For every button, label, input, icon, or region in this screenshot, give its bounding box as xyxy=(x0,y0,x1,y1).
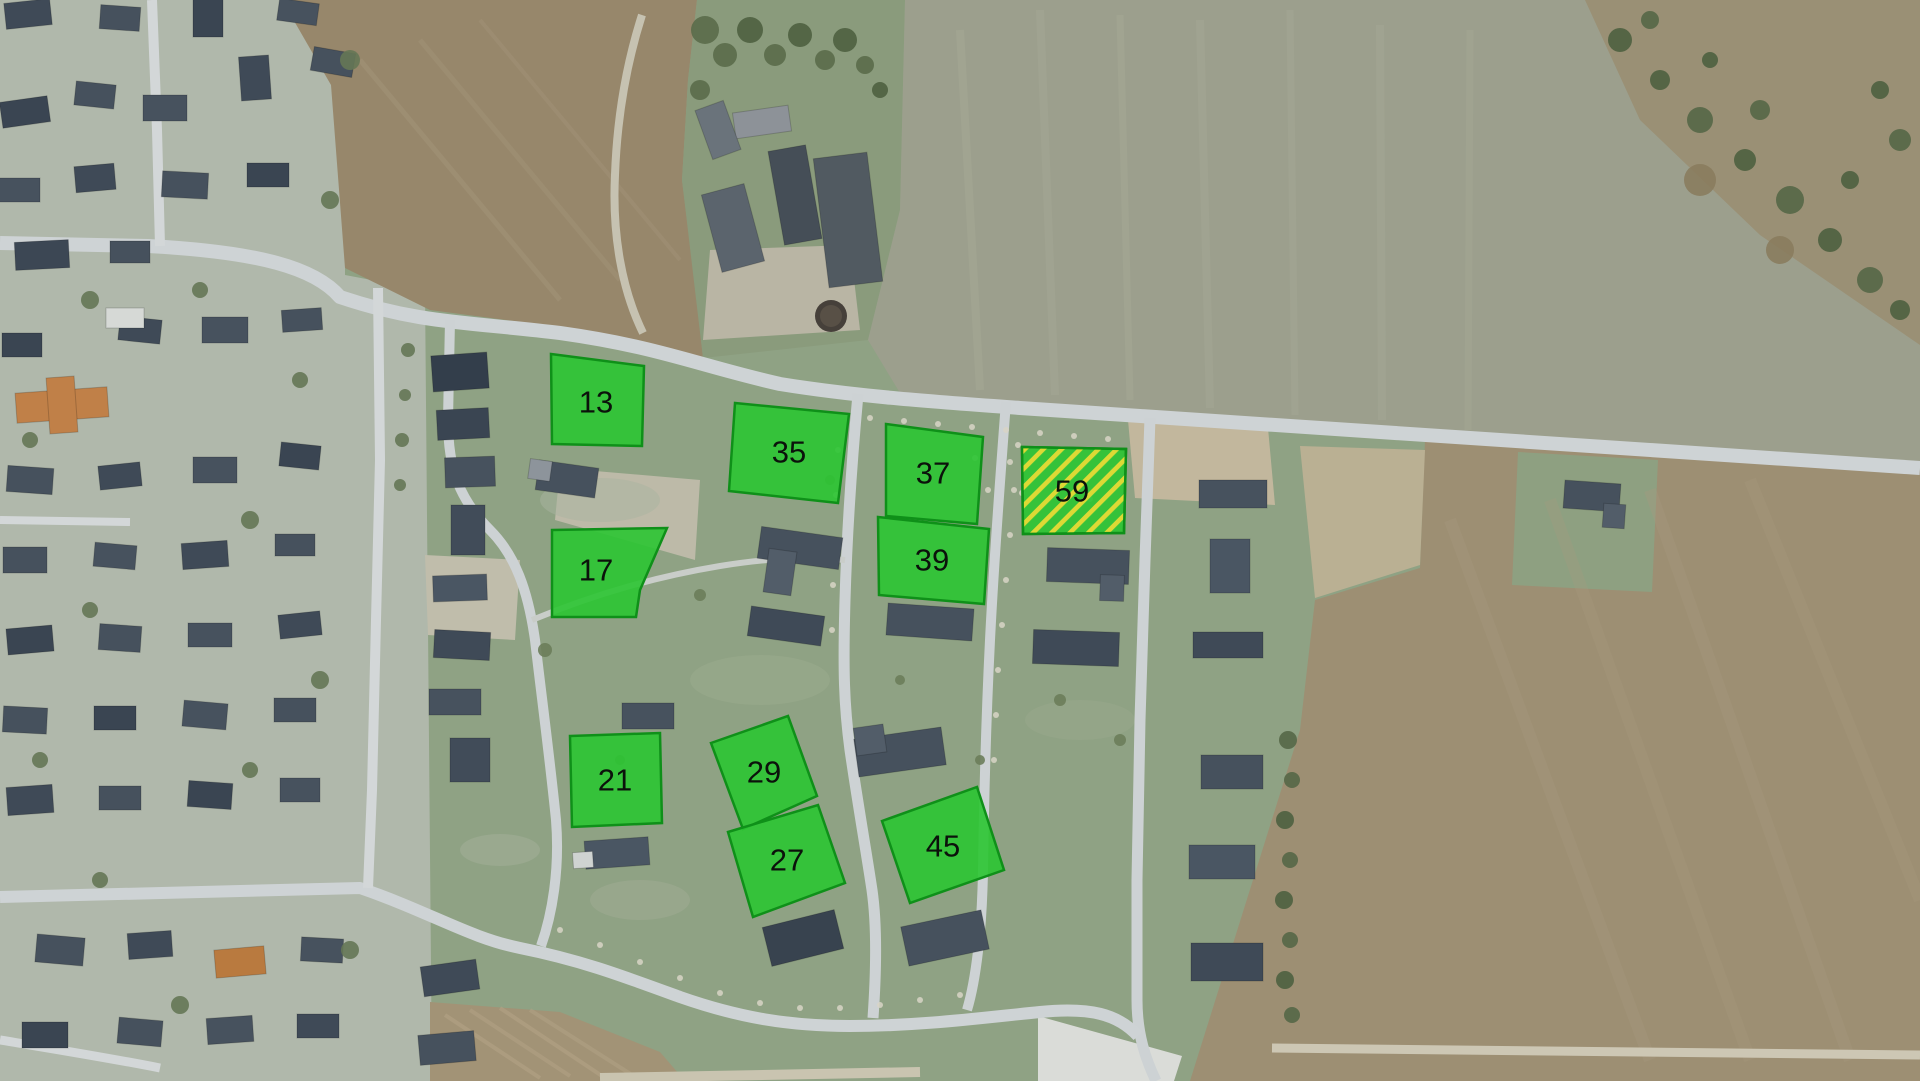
aerial-map: 13353739591721292745 xyxy=(0,0,1920,1081)
farm-tank xyxy=(820,305,842,327)
house-roof xyxy=(117,1017,163,1047)
house-roof xyxy=(433,630,490,661)
house-roof xyxy=(429,689,481,715)
tree xyxy=(538,643,552,657)
house-roof xyxy=(1199,480,1267,508)
house-roof xyxy=(239,55,272,101)
house-roof xyxy=(1191,943,1263,981)
parcel-shape[interactable] xyxy=(551,354,644,446)
house-roof xyxy=(278,611,322,639)
tree xyxy=(872,82,888,98)
house-roof xyxy=(1602,503,1626,528)
tree xyxy=(690,80,710,100)
house-roof xyxy=(451,505,485,555)
tree xyxy=(713,43,737,67)
field-furrow xyxy=(1380,25,1382,420)
house-roof xyxy=(93,542,137,570)
house-roof xyxy=(161,171,208,199)
house-roof xyxy=(436,408,489,441)
tree xyxy=(321,191,339,209)
parcel-59[interactable]: 59 xyxy=(1022,447,1126,534)
sapling-dot xyxy=(1011,487,1017,493)
parcel-37[interactable]: 37 xyxy=(886,424,983,524)
parcel-21[interactable]: 21 xyxy=(570,733,662,827)
tree xyxy=(833,28,857,52)
tree xyxy=(171,996,189,1014)
tree xyxy=(1114,734,1126,746)
house-roof xyxy=(187,780,233,809)
parcel-hatch-overlay xyxy=(1022,447,1126,534)
house-roof xyxy=(297,1014,339,1038)
tree xyxy=(895,675,905,685)
tree xyxy=(1608,28,1632,52)
tree xyxy=(241,511,259,529)
house-roof xyxy=(110,241,150,263)
tree xyxy=(395,433,409,447)
sapling-dot xyxy=(877,1002,883,1008)
aerial-map-canvas: 13353739591721292745 xyxy=(0,0,1920,1081)
house-roof xyxy=(74,163,116,192)
sapling-dot xyxy=(829,627,835,633)
house-roof xyxy=(275,534,315,556)
house-roof xyxy=(444,456,495,488)
house-roof xyxy=(853,724,887,756)
house-roof xyxy=(193,457,237,483)
house-roof xyxy=(98,462,142,490)
house-roof xyxy=(181,540,229,569)
house-roof xyxy=(202,317,248,343)
house-roof xyxy=(280,778,320,802)
house-roof xyxy=(99,5,141,32)
tree xyxy=(737,17,763,43)
house-roof xyxy=(1193,632,1263,658)
tree xyxy=(815,50,835,70)
parcel-39[interactable]: 39 xyxy=(878,517,989,604)
house-roof xyxy=(4,0,52,29)
house-roof xyxy=(763,548,797,595)
house-roof xyxy=(14,240,69,271)
field-east-house-lot xyxy=(1512,452,1658,592)
tree xyxy=(401,343,415,357)
tree xyxy=(82,602,98,618)
road-track-bottom-edge xyxy=(600,1072,920,1078)
house-roof xyxy=(274,698,316,722)
tree xyxy=(764,44,786,66)
tree xyxy=(975,755,985,765)
house-roof xyxy=(450,738,490,782)
sapling-dot xyxy=(830,582,836,588)
house-roof xyxy=(2,333,42,357)
sapling-dot xyxy=(901,418,907,424)
sapling-dot xyxy=(1071,433,1077,439)
house-roof xyxy=(281,308,322,333)
tree xyxy=(691,16,719,44)
house-roof xyxy=(0,178,40,202)
house-roof xyxy=(572,851,593,868)
tree xyxy=(788,23,812,47)
house-roof xyxy=(94,706,136,730)
sapling-dot xyxy=(867,415,873,421)
house-roof xyxy=(35,934,85,966)
tree xyxy=(1776,186,1804,214)
worn-grass xyxy=(460,834,540,866)
tree xyxy=(22,432,38,448)
house-roof xyxy=(206,1015,254,1044)
tree xyxy=(1279,731,1297,749)
tree xyxy=(311,671,329,689)
worn-grass xyxy=(1025,700,1135,740)
sapling-dot xyxy=(935,421,941,427)
tree xyxy=(394,479,406,491)
house-roof xyxy=(1210,539,1250,593)
house-roof xyxy=(1201,755,1263,789)
tree xyxy=(340,50,360,70)
sapling-dot xyxy=(993,712,999,718)
sapling-dot xyxy=(677,975,683,981)
tree xyxy=(694,589,706,601)
tree xyxy=(242,762,258,778)
tree xyxy=(1282,852,1298,868)
tree xyxy=(1284,1007,1300,1023)
sapling-dot xyxy=(837,1005,843,1011)
tree xyxy=(1641,11,1659,29)
sapling-dot xyxy=(597,942,603,948)
tree xyxy=(1889,129,1911,151)
sapling-dot xyxy=(1037,430,1043,436)
house-roof xyxy=(143,95,187,121)
sapling-dot xyxy=(557,927,563,933)
tree xyxy=(1750,100,1770,120)
tree xyxy=(399,389,411,401)
tree xyxy=(1857,267,1883,293)
sapling-dot xyxy=(797,1005,803,1011)
house-roof xyxy=(431,352,489,392)
worn-grass xyxy=(690,655,830,705)
sapling-dot xyxy=(1003,577,1009,583)
house-roof xyxy=(6,625,54,655)
house-roof xyxy=(1100,575,1125,602)
tree xyxy=(1871,81,1889,99)
tree xyxy=(81,291,99,309)
house-roof xyxy=(99,786,141,810)
house-roof xyxy=(182,700,228,730)
sapling-dot xyxy=(985,487,991,493)
house-roof xyxy=(622,703,674,729)
sapling-dot xyxy=(969,424,975,430)
tree xyxy=(1650,70,1670,90)
tree xyxy=(1282,932,1298,948)
tree xyxy=(1684,164,1716,196)
house-roof xyxy=(74,81,116,109)
tree xyxy=(1054,694,1066,706)
sapling-dot xyxy=(1007,459,1013,465)
house-roof xyxy=(2,706,47,734)
house-roof xyxy=(193,0,223,37)
tree xyxy=(1275,891,1293,909)
tree xyxy=(32,752,48,768)
sapling-dot xyxy=(1007,532,1013,538)
sapling-dot xyxy=(917,997,923,1003)
house-roof xyxy=(528,459,553,482)
sapling-dot xyxy=(1015,442,1021,448)
sapling-dot xyxy=(717,990,723,996)
sapling-dot xyxy=(999,622,1005,628)
tree xyxy=(856,56,874,74)
house-roof xyxy=(418,1031,476,1066)
sapling-dot xyxy=(991,757,997,763)
house-roof xyxy=(279,442,321,470)
house-roof xyxy=(6,465,54,494)
sapling-dot xyxy=(637,959,643,965)
house-roof xyxy=(214,946,266,978)
house-roof xyxy=(106,308,144,328)
house-roof xyxy=(46,376,78,434)
tree xyxy=(92,872,108,888)
sapling-dot xyxy=(957,992,963,998)
road-village-lane-1 xyxy=(0,520,130,522)
house-roof xyxy=(98,624,142,653)
house-roof xyxy=(1189,845,1255,879)
house-roof xyxy=(247,163,289,187)
house-roof xyxy=(584,837,650,869)
house-roof xyxy=(1032,630,1119,667)
tree xyxy=(1818,228,1842,252)
tree xyxy=(1276,811,1294,829)
worn-grass xyxy=(590,880,690,920)
tree xyxy=(1276,971,1294,989)
parcel-13[interactable]: 13 xyxy=(551,354,644,446)
house-roof xyxy=(22,1022,68,1048)
tree xyxy=(1841,171,1859,189)
house-roof xyxy=(188,623,232,647)
sapling-dot xyxy=(995,667,1001,673)
house-roof xyxy=(6,784,54,815)
tree xyxy=(192,282,208,298)
tree xyxy=(1687,107,1713,133)
parcel-shape[interactable] xyxy=(570,733,662,827)
sapling-dot xyxy=(1105,436,1111,442)
house-roof xyxy=(3,547,47,573)
sapling-dot xyxy=(757,1000,763,1006)
field-furrow xyxy=(1468,30,1470,430)
tree xyxy=(341,941,359,959)
house-roof xyxy=(300,937,343,963)
parcel-shape[interactable] xyxy=(878,517,989,604)
tree xyxy=(1734,149,1756,171)
house-roof xyxy=(127,930,173,959)
parcel-35[interactable]: 35 xyxy=(729,403,849,503)
house-roof xyxy=(433,574,488,602)
tree xyxy=(1890,300,1910,320)
tree xyxy=(1284,772,1300,788)
tree xyxy=(1766,236,1794,264)
house-roof xyxy=(886,603,974,641)
tree xyxy=(292,372,308,388)
tree xyxy=(1702,52,1718,68)
sapling-dot xyxy=(1003,427,1009,433)
parcel-shape[interactable] xyxy=(729,403,849,503)
parcel-shape[interactable] xyxy=(886,424,983,524)
field-furrow xyxy=(1290,10,1295,415)
